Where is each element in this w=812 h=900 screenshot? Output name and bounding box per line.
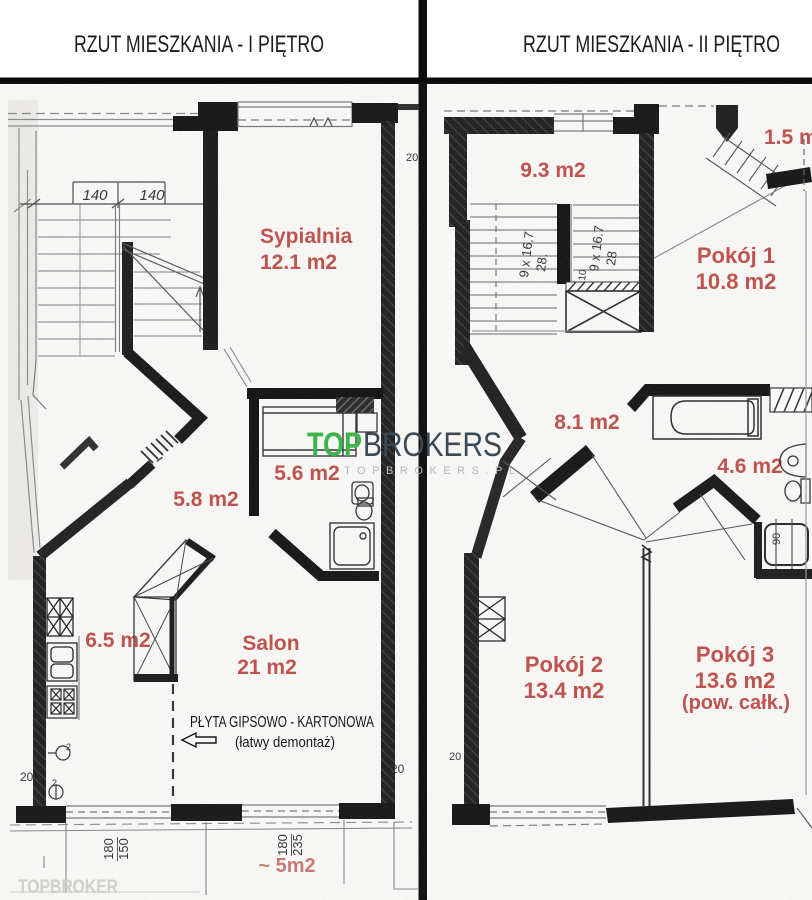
- svg-text:RZUT MIESZKANIA - II PIĘTRO: RZUT MIESZKANIA - II PIĘTRO: [523, 31, 780, 58]
- svg-text:BROKERS: BROKERS: [363, 426, 502, 464]
- svg-text:RZUT MIESZKANIA - I PIĘTRO: RZUT MIESZKANIA - I PIĘTRO: [74, 31, 324, 58]
- svg-text:TOP: TOP: [307, 426, 362, 464]
